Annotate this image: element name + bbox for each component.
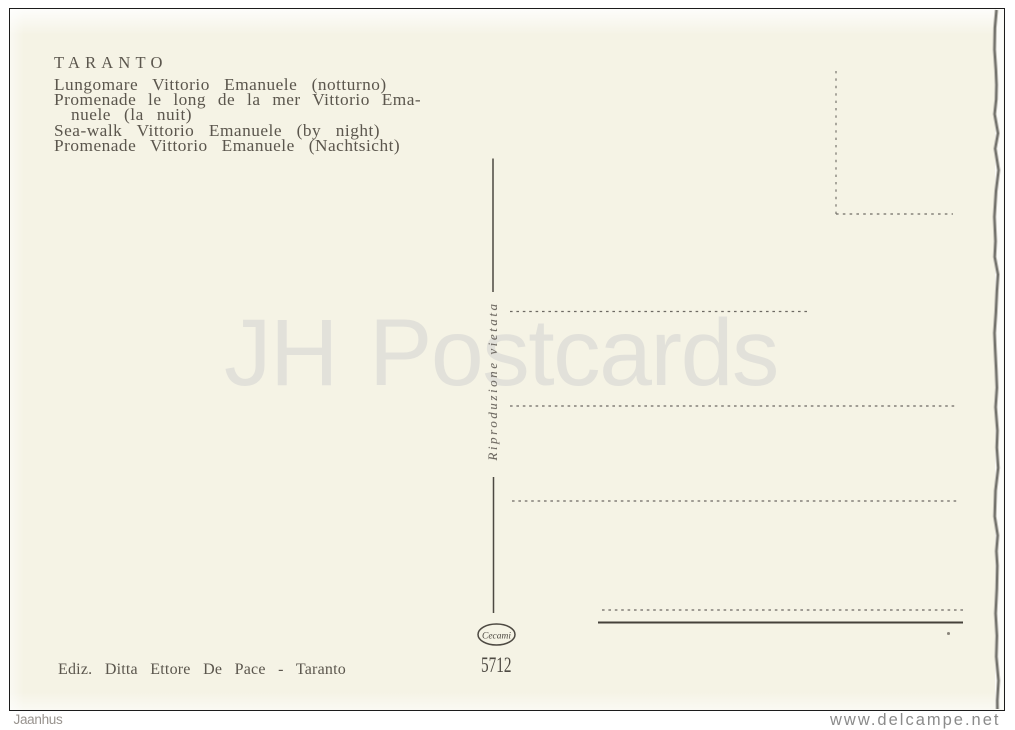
svg-text:Cecami: Cecami — [482, 632, 511, 642]
svg-text:5712: 5712 — [481, 652, 512, 677]
